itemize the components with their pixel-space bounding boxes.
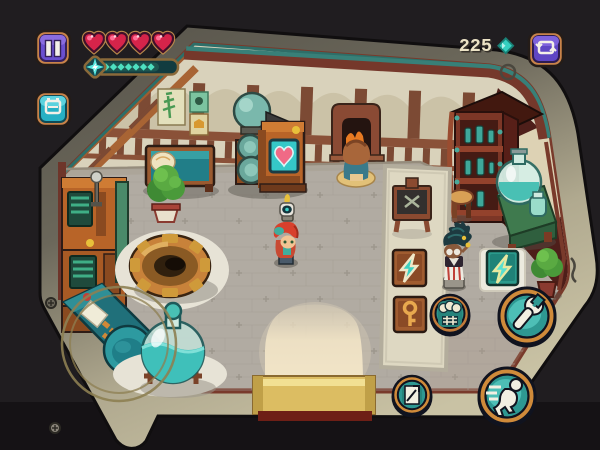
svg-text:225: 225 — [459, 36, 492, 57]
